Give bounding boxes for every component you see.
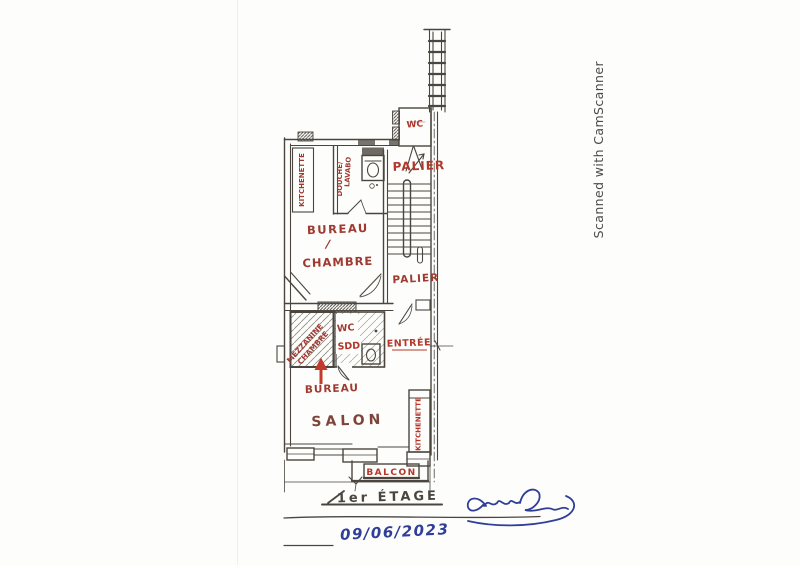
date-handwritten: 09/06/2023 bbox=[340, 520, 450, 544]
camscanner-watermark: Scanned with CamScanner bbox=[588, 62, 608, 238]
kitchenette-closet-right: KITCHENETTE bbox=[409, 390, 430, 452]
wc-sdd-room: WC SDD bbox=[333, 312, 385, 380]
camscanner-watermark-text: Scanned with CamScanner bbox=[591, 61, 606, 238]
mezzanine-room: MEZZANINE CHAMBRE bbox=[285, 312, 334, 371]
bureau-label: BUREAU bbox=[307, 221, 369, 237]
bottom-wall-windows bbox=[285, 444, 431, 466]
ladder-stair-upper bbox=[424, 30, 450, 113]
stairwell: PALIER PALIER bbox=[384, 150, 446, 303]
chambre-label: CHAMBRE bbox=[302, 254, 373, 270]
entree-area: ENTRÉE bbox=[387, 336, 453, 350]
floor-title-block: 1er ÉTAGE bbox=[322, 488, 442, 507]
scanned-floorplan-page: WC KITCHENETTE bbox=[0, 0, 800, 565]
salon-label: SALON bbox=[311, 412, 384, 431]
palier-upper-label: PALIER bbox=[392, 158, 445, 174]
bureau-chambre-room: BUREAU / CHAMBRE bbox=[285, 221, 382, 300]
signature bbox=[468, 490, 574, 526]
kitchenette-top-label: KITCHENETTE bbox=[298, 153, 306, 207]
sdd-label: SDD bbox=[337, 340, 360, 352]
balcony: BALCON bbox=[352, 461, 428, 481]
shower-room: DOUCHE/ LAVABO bbox=[334, 146, 388, 214]
palier-lower-label: PALIER bbox=[392, 272, 439, 286]
floorplan-drawing: WC KITCHENETTE bbox=[0, 0, 800, 565]
balcon-label: BALCON bbox=[366, 468, 416, 478]
entree-label: ENTRÉE bbox=[387, 336, 432, 350]
wc-upper-label: WC bbox=[406, 119, 424, 130]
salon-room: SALON bbox=[311, 412, 384, 431]
kitchenette-closet-top: KITCHENETTE bbox=[293, 148, 314, 212]
slash-label: / bbox=[324, 237, 332, 252]
kitchenette-right-label: KITCHENETTE bbox=[415, 397, 423, 451]
wc-lower-label: WC bbox=[337, 322, 355, 334]
lavabo-label: LAVABO bbox=[343, 156, 353, 187]
bureau-pointer-label: BUREAU bbox=[305, 382, 360, 396]
